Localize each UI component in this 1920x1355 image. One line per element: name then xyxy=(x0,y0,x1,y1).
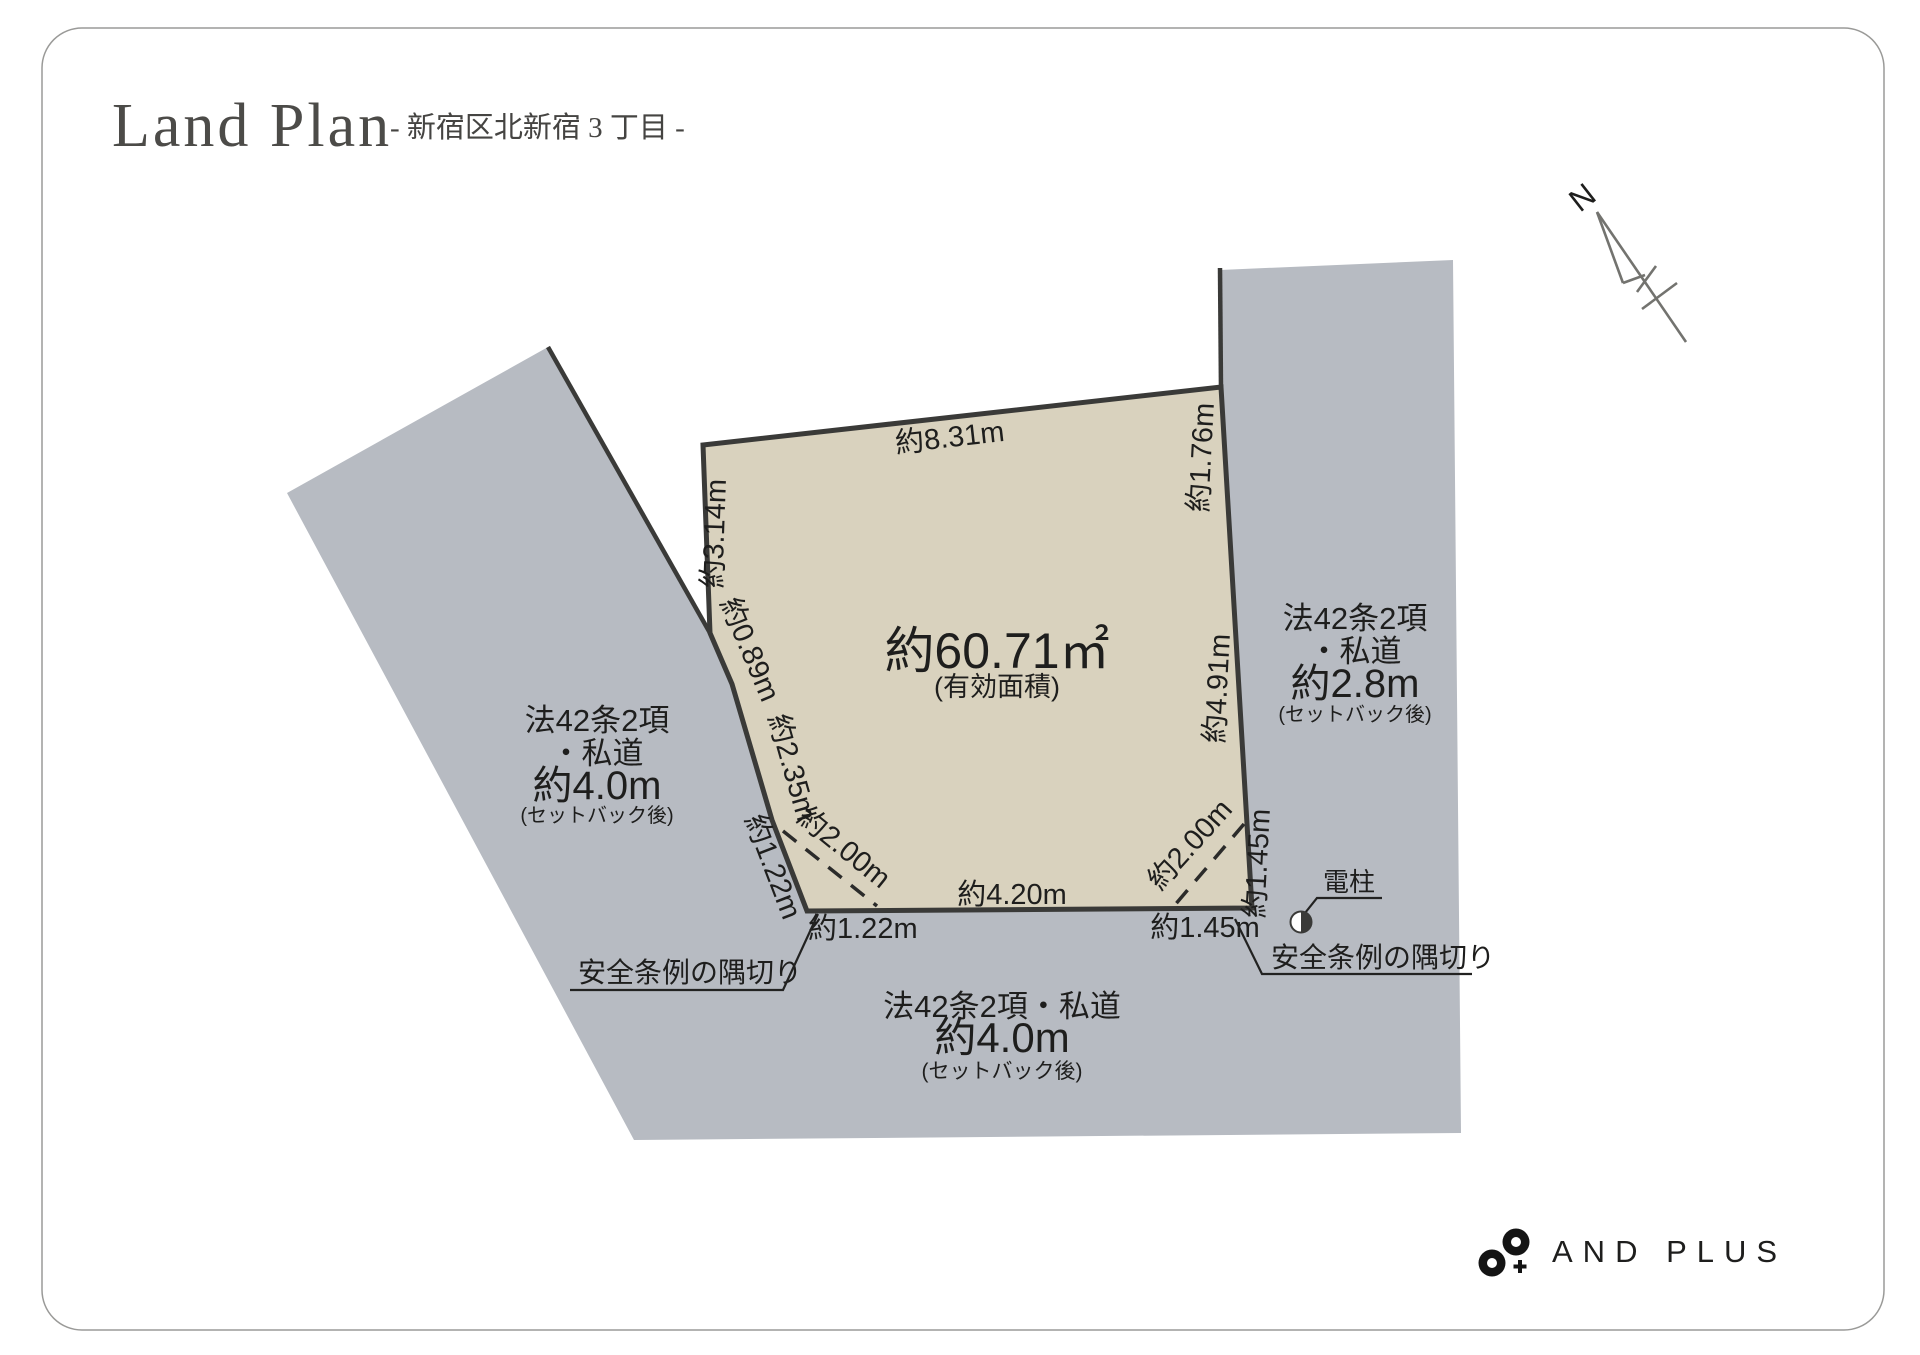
corner-cut-left-label: 安全条例の隅切り xyxy=(578,957,802,988)
page-title: Land Plan xyxy=(112,92,392,160)
dim-cut-right-edge: 約1.45m xyxy=(1238,808,1277,919)
utility-pole-label: 電柱 xyxy=(1323,867,1375,897)
road-label-left: 法42条2項 ・私道 約4.0m (セットバック後) xyxy=(520,703,673,827)
land-plan-drawing: Land Plan - 新宿区北新宿 3 丁目 - 約60.71㎡ (有効面積)… xyxy=(0,0,1920,1355)
road-left-line3: 約4.0m xyxy=(533,764,662,808)
road-right-line3: 約2.8m xyxy=(1291,662,1420,706)
dim-cut-left-bottom: 約1.22m xyxy=(808,912,918,945)
parcel-area-note: (有効面積) xyxy=(934,672,1060,702)
north-arrow-icon: N xyxy=(1562,176,1686,342)
road-bottom-line3: (セットバック後) xyxy=(922,1060,1083,1083)
road-left-line1: 法42条2項 xyxy=(525,703,670,738)
dim-bottom: 約4.20m xyxy=(957,878,1067,911)
road-right-line1: 法42条2項 xyxy=(1283,601,1428,636)
road-left-line4: (セットバック後) xyxy=(520,804,673,827)
dim-left-upper: 約3.14m xyxy=(696,478,733,589)
dim-cut-right-bottom: 約1.45m xyxy=(1150,911,1260,944)
dim-right-upper: 約1.76m xyxy=(1182,402,1221,513)
utility-pole-icon xyxy=(1291,912,1312,933)
road-label-right: 法42条2項 ・私道 約2.8m (セットバック後) xyxy=(1278,601,1431,726)
road-bottom-line2: 約4.0m xyxy=(934,1014,1069,1061)
company-logo-text: AND PLUS xyxy=(1552,1234,1787,1269)
road-right-line4: (セットバック後) xyxy=(1278,703,1431,726)
corner-cut-right-label: 安全条例の隅切り xyxy=(1271,942,1495,973)
land-plan-page: Land Plan - 新宿区北新宿 3 丁目 - 約60.71㎡ (有効面積)… xyxy=(0,0,1920,1355)
and-plus-logo-icon xyxy=(1479,1229,1530,1277)
company-logo: AND PLUS xyxy=(1479,1229,1788,1277)
dim-right-main: 約4.91m xyxy=(1198,633,1237,744)
right-road-edge-line xyxy=(1220,268,1221,390)
parcel-area-value: 約60.71㎡ xyxy=(884,623,1109,679)
page-subtitle: - 新宿区北新宿 3 丁目 - xyxy=(390,111,685,144)
